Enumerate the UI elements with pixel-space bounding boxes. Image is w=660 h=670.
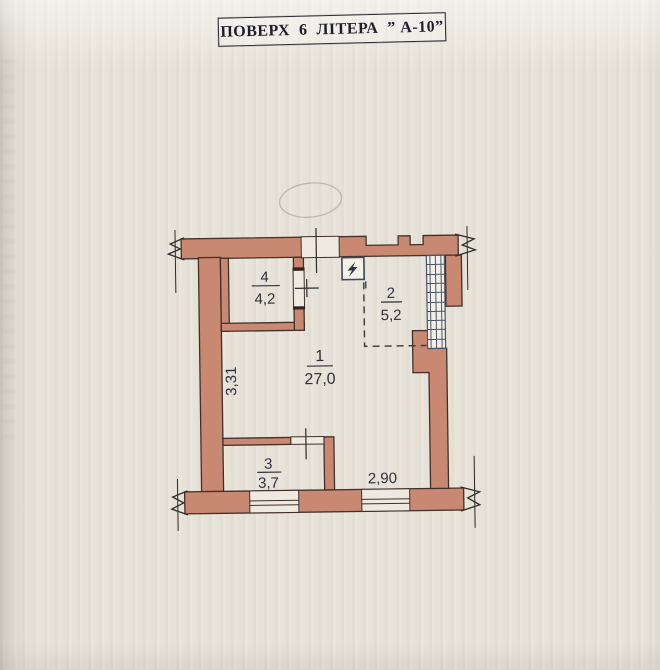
room4-door-jamb-top bbox=[292, 267, 304, 270]
floor-plan-drawing: 1 27,0 2 5,2 3 3,7 4 4,2 3,31 2,90 bbox=[0, 0, 660, 670]
entry-door-opening bbox=[301, 236, 339, 258]
room4-bottom-wall bbox=[221, 322, 304, 331]
room-3-number: 3 bbox=[264, 456, 273, 473]
room3-top-wall bbox=[223, 437, 291, 445]
room-1-number: 1 bbox=[315, 348, 324, 365]
room3-right-wall bbox=[324, 437, 335, 490]
room-4-number: 4 bbox=[260, 269, 269, 286]
entry-door-mark bbox=[316, 228, 317, 273]
room-2-number: 2 bbox=[387, 285, 396, 302]
room-4-area: 4,2 bbox=[254, 291, 275, 308]
room4-door-opening bbox=[293, 270, 305, 308]
dimension-left-wall: 3,31 bbox=[223, 367, 240, 396]
right-wall-lower bbox=[412, 330, 448, 488]
bottom-wall bbox=[185, 488, 464, 514]
room4-left-wall bbox=[220, 258, 229, 331]
electrical-panel-icon bbox=[342, 257, 366, 288]
room-3-area: 3,7 bbox=[258, 475, 279, 492]
stamp-smudge bbox=[278, 180, 343, 220]
dimension-bottom-window: 2,90 bbox=[368, 470, 397, 487]
room4-door-jamb-bottom bbox=[293, 306, 305, 309]
room4-right-wall-lower bbox=[294, 308, 304, 330]
window-opening-1 bbox=[250, 490, 299, 513]
room-2-area: 5,2 bbox=[381, 307, 402, 324]
scanned-page: ПОВЕРХ 6 ЛІТЕРА ” А-10” bbox=[0, 0, 660, 670]
right-wall-upper bbox=[445, 255, 462, 306]
left-wall bbox=[198, 257, 223, 491]
window-opening-2 bbox=[362, 489, 410, 512]
room3-door-opening bbox=[291, 436, 324, 444]
room-1-area: 27,0 bbox=[304, 371, 335, 388]
